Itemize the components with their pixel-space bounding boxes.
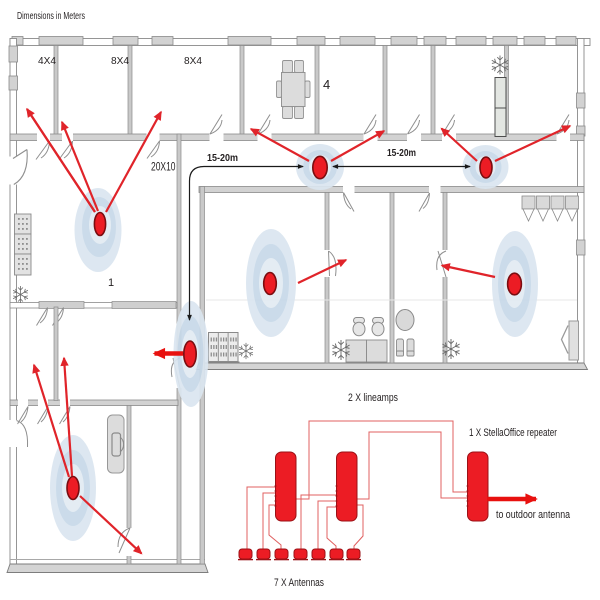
svg-text:Dimensions in Meters: Dimensions in Meters xyxy=(17,11,85,22)
svg-text:8X4: 8X4 xyxy=(184,55,202,67)
svg-text:1 X StellaOffice repeater: 1 X StellaOffice repeater xyxy=(469,427,557,439)
svg-text:7 X Antennas: 7 X Antennas xyxy=(274,577,324,589)
svg-text:20X10: 20X10 xyxy=(151,162,176,174)
svg-text:2 X lineamps: 2 X lineamps xyxy=(348,392,398,404)
svg-text:15-20m: 15-20m xyxy=(207,152,238,164)
svg-text:1: 1 xyxy=(108,277,114,289)
svg-text:4X4: 4X4 xyxy=(38,55,56,67)
svg-text:8X4: 8X4 xyxy=(111,55,129,67)
svg-text:15-20m: 15-20m xyxy=(387,147,416,159)
svg-text:4: 4 xyxy=(323,77,330,92)
svg-text:to outdoor antenna: to outdoor antenna xyxy=(496,509,571,521)
